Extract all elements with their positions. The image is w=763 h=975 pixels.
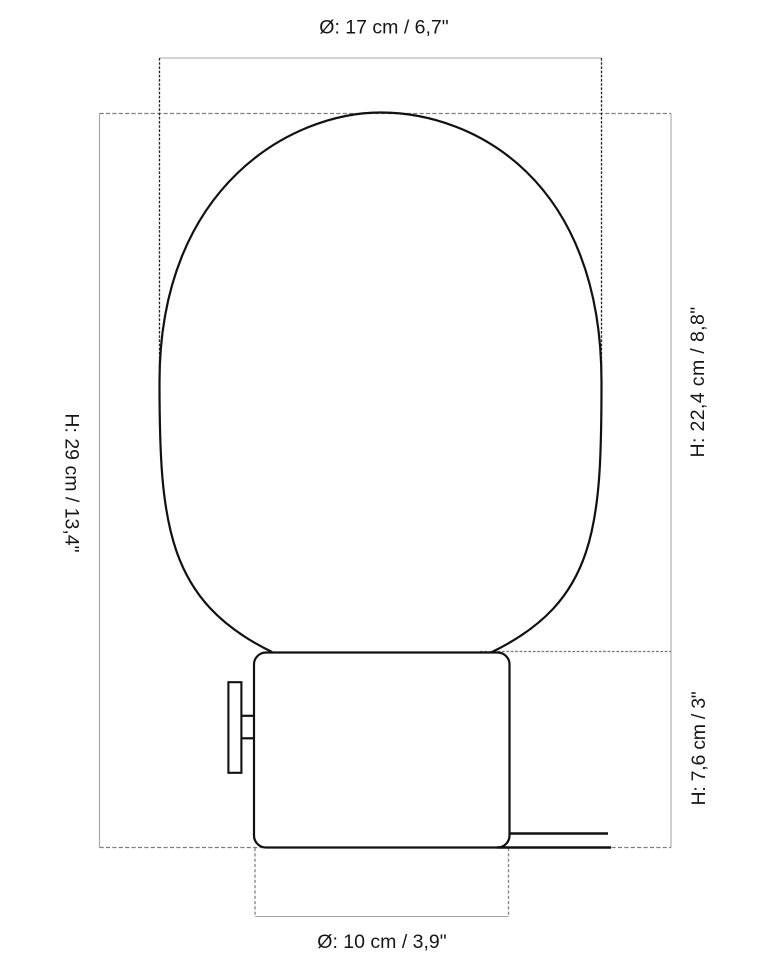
- svg-text:H: 7,6 cm / 3": H: 7,6 cm / 3": [688, 691, 710, 805]
- svg-text:Ø: 17 cm / 6,7": Ø: 17 cm / 6,7": [319, 17, 448, 39]
- svg-text:H: 29 cm / 13,4": H: 29 cm / 13,4": [61, 413, 83, 552]
- svg-text:H: 22,4 cm / 8,8": H: 22,4 cm / 8,8": [687, 306, 709, 457]
- svg-text:Ø: 10 cm / 3,9": Ø: 10 cm / 3,9": [317, 931, 446, 953]
